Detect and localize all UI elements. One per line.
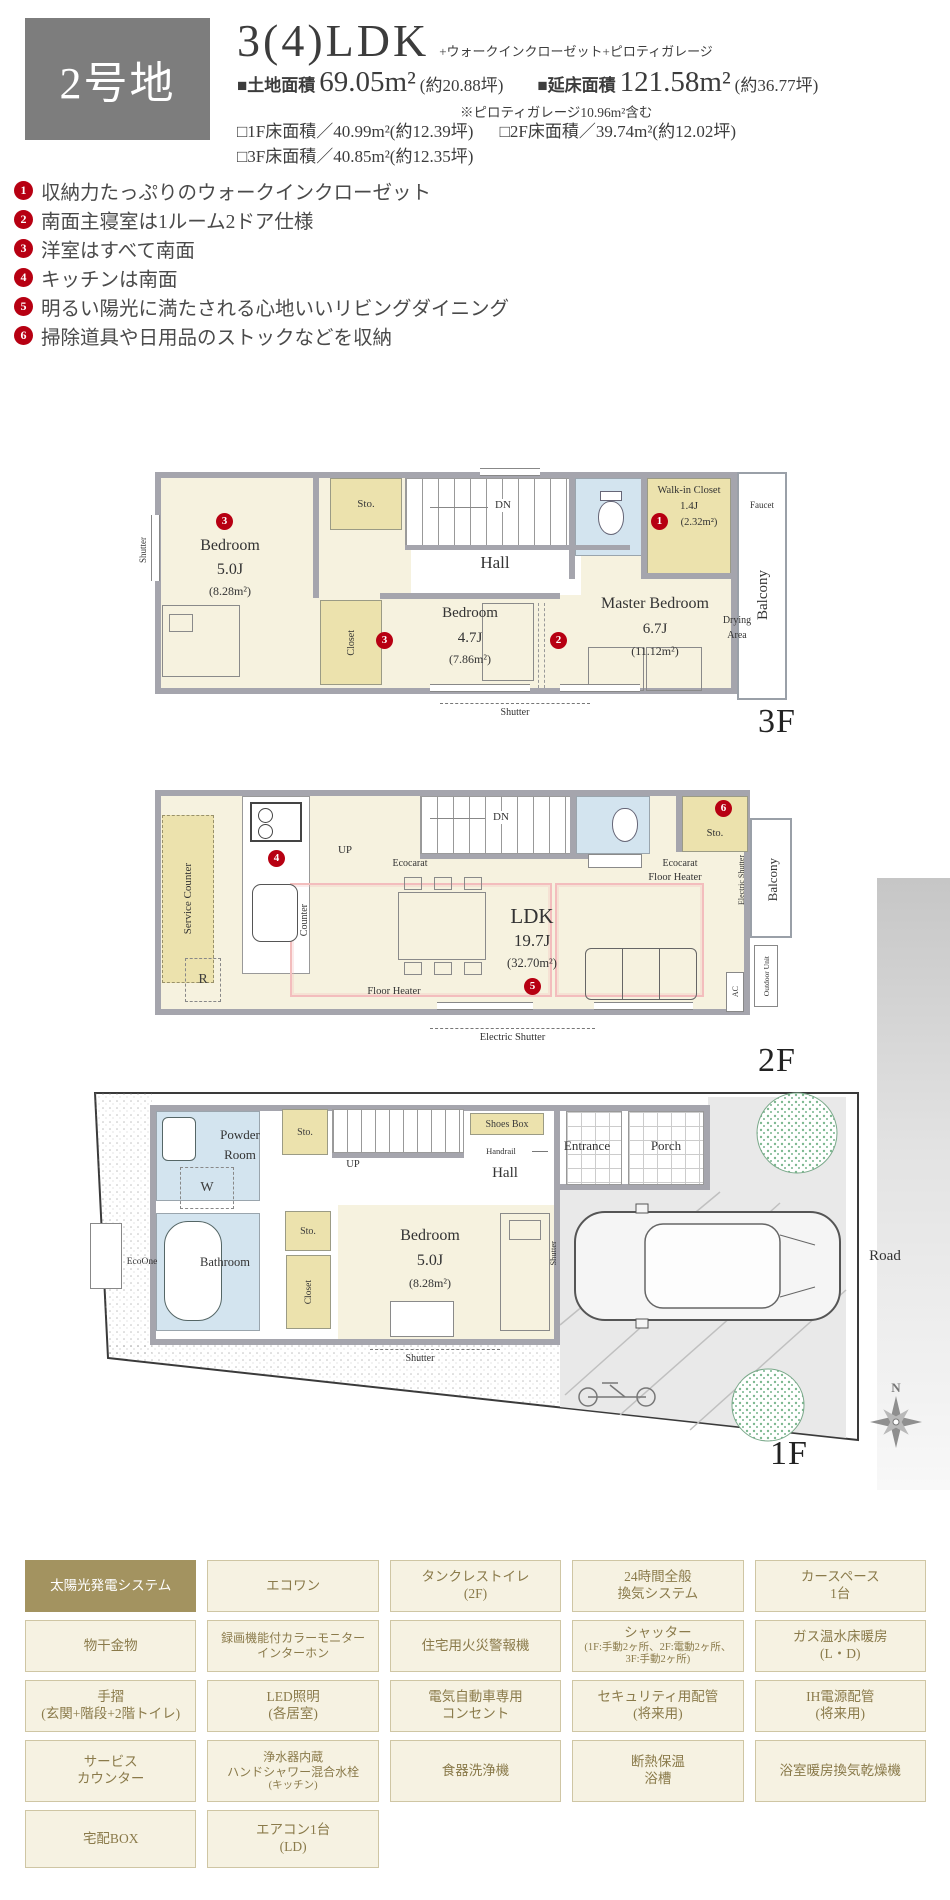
storage-label: Sto. xyxy=(297,1127,313,1138)
bed xyxy=(500,1213,550,1331)
plan-type-title: 3(4)LDK+ウォークインクローゼット+ピロティガレージ xyxy=(237,14,713,67)
feature-badge-1: 1 xyxy=(14,181,33,200)
amenity-cell: タンクレストイレ (2F) xyxy=(390,1560,561,1612)
floor-area-row-1: □1F床面積／40.99m²(約12.39坪) □2F床面積／39.74m²(約… xyxy=(237,117,736,142)
bedroom47-size: 4.7J xyxy=(415,630,525,647)
refrigerator-label: R xyxy=(198,972,207,988)
shutter-bracket xyxy=(430,1028,595,1029)
wall xyxy=(647,573,737,579)
amenity-cell: カースペース 1台 xyxy=(755,1560,926,1612)
feature-text: 洋室はすべて南面 xyxy=(41,234,195,263)
f2-area: □2F床面積／39.74m²(約12.02坪) xyxy=(500,122,736,141)
f1-area: □1F床面積／40.99m²(約12.39坪) xyxy=(237,122,473,141)
car xyxy=(575,1204,840,1328)
amenity-cell: 物干金物 xyxy=(25,1620,196,1672)
chair xyxy=(434,877,452,890)
floor-area-row-2: □3F床面積／40.85m²(約12.35坪) xyxy=(237,142,473,167)
ecocarat-label: Ecocarat xyxy=(370,858,450,870)
amenity-cell: ガス温水床暖房 (L・D) xyxy=(755,1620,926,1672)
closet-label: Closet xyxy=(304,1280,314,1304)
handrail-label: Handrail xyxy=(471,1147,531,1157)
feature-list: 1収納力たっぷりのウォークインクローゼット 2南面主寝室は1ルーム2ドア仕様 3… xyxy=(14,180,509,354)
amenity-cell: 宅配BOX xyxy=(25,1810,196,1868)
bedroom-area: (8.28m²) xyxy=(370,1277,490,1291)
wall xyxy=(313,472,319,598)
water-heater-unit xyxy=(90,1223,122,1289)
bedroom-size: 5.0J xyxy=(370,1252,490,1270)
window xyxy=(430,684,530,692)
amenity-cell: IH電源配管 (将来用) xyxy=(755,1680,926,1732)
chair xyxy=(434,962,452,975)
room-divider-dashed xyxy=(538,603,545,688)
tree xyxy=(732,1369,804,1441)
floor-label-3f: 3F xyxy=(758,703,796,741)
feature-item: 2南面主寝室は1ルーム2ドア仕様 xyxy=(14,209,509,229)
land-area-label: ■土地面積 xyxy=(237,76,315,95)
electric-shutter-bottom-label: Electric Shutter xyxy=(440,1032,585,1044)
amenity-cell: 浄水器内蔵 ハンドシャワー混合水栓(キッチン) xyxy=(207,1740,378,1802)
ac-label: AC xyxy=(731,986,740,997)
shutter-bottom-label: Shutter xyxy=(460,707,570,719)
chair xyxy=(404,877,422,890)
stove-icon xyxy=(250,802,302,842)
amenity-grid: 太陽光発電システム エコワン タンクレストイレ (2F) 24時間全般 換気シス… xyxy=(25,1560,926,1868)
counter-label: Counter xyxy=(299,904,310,936)
amenity-cell-solar: 太陽光発電システム xyxy=(25,1560,196,1612)
amenity-cell: エアコン1台 (LD) xyxy=(207,1810,378,1868)
amenity-cell: エコワン xyxy=(207,1560,378,1612)
feature-item: 4キッチンは南面 xyxy=(14,267,509,287)
window xyxy=(480,468,540,476)
floor-label-2f: 2F xyxy=(758,1042,796,1080)
road-label: Road xyxy=(845,1248,925,1265)
f3-area: □3F床面積／40.85m²(約12.35坪) xyxy=(237,147,473,166)
amenity-cell: 電気自動車専用 コンセント xyxy=(390,1680,561,1732)
ldk-size: 19.7J xyxy=(472,931,592,951)
master-size: 6.7J xyxy=(595,621,715,638)
shutter-bottom-label: Shutter xyxy=(365,1353,475,1365)
amenity-cell: 断熱保温 浴槽 xyxy=(572,1740,743,1802)
bedroom5-name: Bedroom xyxy=(175,537,285,555)
shutter-bracket xyxy=(370,1349,500,1350)
chair xyxy=(464,877,482,890)
amenity-cell: 食器洗浄機 xyxy=(390,1740,561,1802)
feature-item: 1収納力たっぷりのウォークインクローゼット xyxy=(14,180,509,200)
wall xyxy=(570,790,576,854)
dn-label: DN xyxy=(488,499,518,512)
window xyxy=(594,1002,693,1010)
pillow xyxy=(169,614,193,632)
compass-icon xyxy=(870,1396,922,1448)
closet-3f: Closet xyxy=(320,600,382,685)
total-area-value: 121.58m² xyxy=(620,66,731,98)
shoes-box: Shoes Box xyxy=(470,1113,544,1135)
bed xyxy=(162,605,240,677)
ldk-name: LDK xyxy=(472,904,592,928)
amenity-cell: LED照明 (各居室) xyxy=(207,1680,378,1732)
plan-badge-6: 6 xyxy=(715,800,732,817)
lot-number-label: 2号地 xyxy=(60,47,176,111)
faucet-label: Faucet xyxy=(735,500,789,510)
amenity-cell: 住宅用火災警報機 xyxy=(390,1620,561,1672)
bedroom-name: Bedroom xyxy=(370,1227,490,1245)
feature-text: キッチンは南面 xyxy=(41,263,178,292)
staircase xyxy=(332,1109,464,1153)
wall xyxy=(332,1153,464,1158)
feature-text: 掃除道具や日用品のストックなどを収納 xyxy=(41,321,392,350)
plan-badge-3b: 3 xyxy=(376,632,393,649)
floor-heater-label-2: Floor Heater xyxy=(339,986,449,998)
amenity-cell: 浴室暖房換気乾燥機 xyxy=(755,1740,926,1802)
porch-label: Porch xyxy=(628,1139,704,1154)
refrigerator-space: R xyxy=(185,958,221,1002)
amenity-cell: 手摺 (玄関+階段+2階トイレ) xyxy=(25,1680,196,1732)
gravel-area xyxy=(108,1343,560,1407)
storage-1f-upper: Sto. xyxy=(282,1109,328,1155)
dn-arrow-line xyxy=(430,818,485,819)
washer-space: W xyxy=(180,1167,234,1209)
bedroom47-area: (7.86m²) xyxy=(420,653,520,667)
ldk-area: (32.70m²) xyxy=(472,956,592,970)
sofa xyxy=(585,948,697,1000)
master-area: (11.12m²) xyxy=(595,645,715,659)
wall xyxy=(380,593,560,599)
feature-text: 南面主寝室は1ルーム2ドア仕様 xyxy=(41,205,313,234)
feature-item: 6掃除道具や日用品のストックなどを収納 xyxy=(14,325,509,345)
plan-badge-3a: 3 xyxy=(216,513,233,530)
plan-suffix: +ウォークインクローゼット+ピロティガレージ xyxy=(439,44,713,59)
floor-plan-3f: Balcony Faucet DN Hall Sto. Walk-in Clos… xyxy=(130,455,820,755)
bedroom5-size: 5.0J xyxy=(175,561,285,579)
outdoor-unit-label: Outdoor Unit xyxy=(762,956,771,996)
handrail-line xyxy=(532,1151,548,1152)
toilet-tank-icon xyxy=(600,491,622,501)
amenity-cell: 録画機能付カラーモニター インターホン xyxy=(207,1620,378,1672)
bathtub-icon xyxy=(164,1221,222,1321)
washer-label: W xyxy=(200,1180,213,1196)
bedroom47-name: Bedroom xyxy=(410,605,530,622)
total-area-tsubo: (約36.77坪) xyxy=(735,76,819,95)
hall-label: Hall xyxy=(420,553,570,573)
up-label: UP xyxy=(330,844,360,857)
pillow xyxy=(509,1220,541,1240)
master-name: Master Bedroom xyxy=(570,595,740,613)
service-counter-label: Service Counter xyxy=(182,863,194,934)
shutter-side-label: Shutter xyxy=(548,1241,558,1266)
feature-text: 明るい陽光に満たされる心地いいリビングダイニング xyxy=(41,292,509,321)
ac-unit: AC xyxy=(726,972,744,1012)
wall xyxy=(405,545,630,550)
closet-1f: Closet xyxy=(286,1255,331,1329)
wic-name: Walk-in Closet xyxy=(645,485,733,497)
feature-item: 5明るい陽光に満たされる心地いいリビングダイニング xyxy=(14,296,509,316)
toilet-icon xyxy=(612,808,638,842)
floor-label-1f: 1F xyxy=(770,1435,808,1473)
plan-badge-2: 2 xyxy=(550,632,567,649)
wall xyxy=(676,790,682,852)
powder-room-label: Powder Room xyxy=(195,1125,285,1164)
balcony-label: Balcony xyxy=(765,858,781,901)
storage-label: Sto. xyxy=(357,498,374,510)
outdoor-unit: Outdoor Unit xyxy=(754,945,778,1007)
closet-label: Closet xyxy=(346,630,357,656)
feature-badge-5: 5 xyxy=(14,297,33,316)
feature-badge-4: 4 xyxy=(14,268,33,287)
ecoone-label: EcoOne xyxy=(114,1257,170,1268)
bedroom5-area: (8.28m²) xyxy=(175,585,285,599)
area-summary-row: ■土地面積 69.05m² (約20.88坪) ■延床面積 121.58m² (… xyxy=(237,66,818,99)
flyer-page: 2号地 3(4)LDK+ウォークインクローゼット+ピロティガレージ ■土地面積 … xyxy=(0,0,950,1900)
floor-heater-label: Floor Heater xyxy=(620,872,730,884)
window xyxy=(437,1002,533,1010)
storage-label: Sto. xyxy=(300,1226,316,1237)
storage-label: Sto. xyxy=(682,828,748,840)
lot-number-box: 2号地 xyxy=(25,18,210,140)
dn-arrow-line xyxy=(430,507,488,508)
plan-badge-1: 1 xyxy=(651,513,668,530)
plan-badge-4: 4 xyxy=(268,850,285,867)
burner-icon xyxy=(258,824,273,839)
toilet-icon xyxy=(598,501,624,535)
total-area-label: ■延床面積 xyxy=(537,76,615,95)
tree xyxy=(757,1093,837,1173)
burner-icon xyxy=(258,808,273,823)
bathroom-label: Bathroom xyxy=(170,1255,280,1269)
floor-plan-1f: Powder Room W Sto. UP Shoes Box Handrail… xyxy=(80,1085,950,1505)
tv-board xyxy=(588,854,642,868)
amenity-cell: サービス カウンター xyxy=(25,1740,196,1802)
chair xyxy=(404,962,422,975)
window xyxy=(151,515,160,581)
amenity-cell: シャッター(1F:手動2ヶ所、2F:電動2ヶ所、 3F:手動2ヶ所) xyxy=(572,1620,743,1672)
dn-label: DN xyxy=(486,811,516,824)
land-area-value: 69.05m² xyxy=(319,66,416,98)
up-label: UP xyxy=(338,1159,368,1171)
window xyxy=(560,684,640,692)
feature-badge-6: 6 xyxy=(14,326,33,345)
feature-badge-2: 2 xyxy=(14,210,33,229)
sink-icon xyxy=(252,884,298,942)
feature-badge-3: 3 xyxy=(14,239,33,258)
desk xyxy=(390,1301,454,1337)
vanity-icon xyxy=(162,1117,196,1161)
north-label: N xyxy=(880,1381,912,1396)
storage-1f-lower: Sto. xyxy=(285,1211,331,1251)
wic-size: 1.4J xyxy=(645,500,733,513)
feature-text: 収納力たっぷりのウォークインクローゼット xyxy=(41,176,431,205)
amenity-cell: セキュリティ用配管 (将来用) xyxy=(572,1680,743,1732)
drying-area-label: Drying Area xyxy=(705,613,769,643)
shutter-left-label: Shutter xyxy=(138,537,148,563)
wic-area: (2.32m²) xyxy=(655,517,743,529)
shutter-bracket xyxy=(440,703,590,704)
electric-shutter-side-label: Electric Shutter xyxy=(737,855,746,905)
plan-type: 3(4)LDK xyxy=(237,15,429,66)
shoes-box-label: Shoes Box xyxy=(485,1119,528,1130)
plan-badge-5: 5 xyxy=(524,978,541,995)
ecocarat-label-2: Ecocarat xyxy=(640,858,720,870)
amenity-cell: 24時間全般 換気システム xyxy=(572,1560,743,1612)
feature-item: 3洋室はすべて南面 xyxy=(14,238,509,258)
entrance-label: Entrance xyxy=(547,1139,627,1154)
storage-3f: Sto. xyxy=(330,478,402,530)
floor-plan-2f: Electric Shutter Balcony Outdoor Unit AC… xyxy=(130,780,820,1095)
hall-label: Hall xyxy=(460,1165,550,1182)
land-area-tsubo: (約20.88坪) xyxy=(420,76,504,95)
